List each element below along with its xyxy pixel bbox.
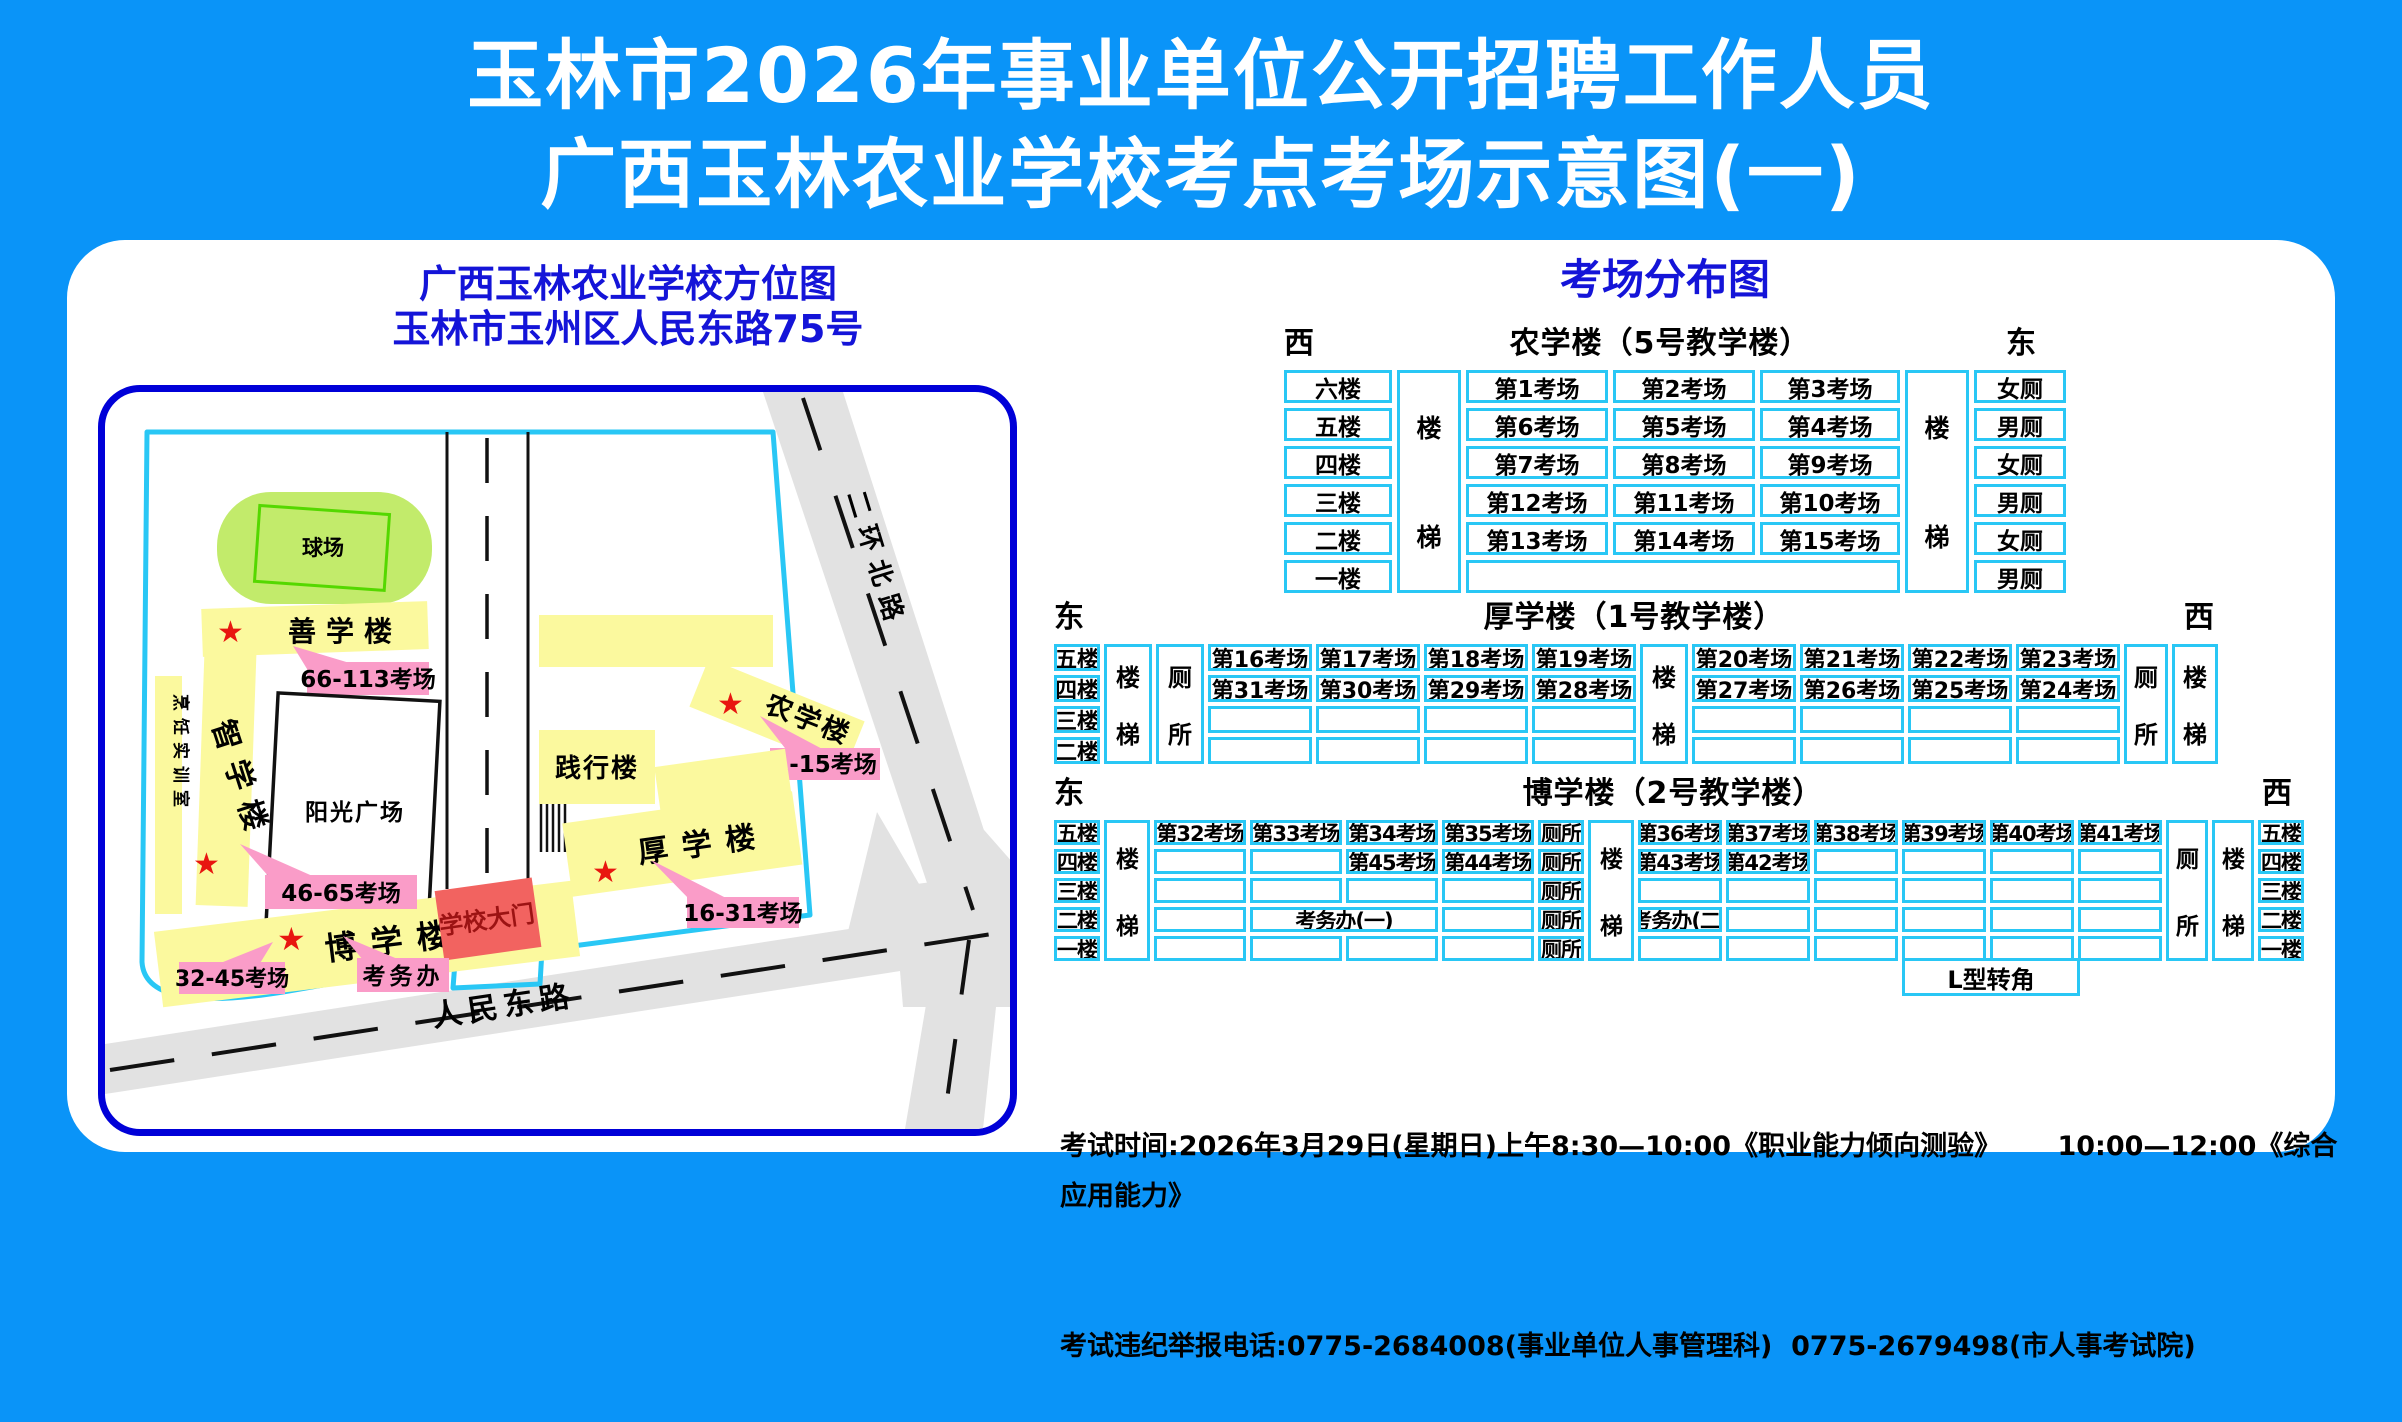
exam-room-cell: 第8考场 <box>1613 446 1755 479</box>
exam-room-cell: 第3考场 <box>1760 370 1900 403</box>
campus-map: 球场 践行楼 ★ 农学楼 1-15考场 ★ 善学楼 66-113考场 烹饪实训室… <box>98 385 1017 1136</box>
stair-char: 梯 <box>1116 907 1138 941</box>
toilet-char: 厕 <box>1168 658 1192 693</box>
table-nongxue-title: 农学楼（5号教学楼） <box>1510 318 1811 362</box>
empty-cell <box>1908 737 2012 764</box>
direction-label-east: 东 <box>1054 768 1084 812</box>
floor-label: 二楼 <box>1054 737 1100 764</box>
empty-cell <box>2016 706 2120 733</box>
empty-cell <box>1990 849 2074 874</box>
exam-room-cell: 第13考场 <box>1466 522 1608 555</box>
toilet-cell: 男厕 <box>1974 560 2066 593</box>
gate-railing <box>541 804 565 852</box>
stair-char: 楼 <box>1600 840 1622 874</box>
floor-label: 五楼 <box>2258 820 2304 845</box>
table-nongxue-header: 西 农学楼（5号教学楼） 东 <box>1284 318 2036 362</box>
exam-room-cell: 第11考场 <box>1613 484 1755 517</box>
empty-cell <box>1692 706 1796 733</box>
stair-cell: 楼 梯 <box>2172 644 2218 764</box>
toilet-cell: 厕所 <box>1538 878 1584 903</box>
stair-char: 楼 <box>1416 409 1441 445</box>
empty-cell <box>1532 706 1636 733</box>
stair-char: 梯 <box>1600 907 1622 941</box>
toilet-cell: 厕所 <box>1538 907 1584 932</box>
stair-cell: 楼 梯 <box>1104 820 1150 961</box>
toilet-char: 所 <box>2176 907 2198 941</box>
exam-room-cell: 第1考场 <box>1466 370 1608 403</box>
exam-room-cell: 第35考场 <box>1442 820 1534 845</box>
star-icon: ★ <box>592 855 619 890</box>
stair-char: 楼 <box>1116 840 1138 874</box>
exam-room-cell: 第6考场 <box>1466 408 1608 441</box>
exam-room-cell: 第14考场 <box>1613 522 1755 555</box>
exam-room-cell: 第10考场 <box>1760 484 1900 517</box>
empty-cell <box>1814 936 1898 961</box>
empty-cell <box>1800 737 1904 764</box>
poster-title: 玉林市2026年事业单位公开招聘工作人员 广西玉林农业学校考点考场示意图(一) <box>0 26 2402 224</box>
playground-label: 球场 <box>302 536 344 560</box>
empty-cell <box>1208 706 1312 733</box>
empty-cell <box>1814 907 1898 932</box>
direction-label-east: 东 <box>2006 318 2036 362</box>
star-icon: ★ <box>717 687 744 722</box>
toilet-cell: 女厕 <box>1974 370 2066 403</box>
toilet-char: 所 <box>2134 715 2158 750</box>
direction-label-west: 西 <box>2184 592 2214 636</box>
empty-cell <box>1442 878 1534 903</box>
stair-char: 梯 <box>1652 715 1676 750</box>
toilet-cell: 女厕 <box>1974 522 2066 555</box>
exam-room-cell: 第30考场 <box>1316 675 1420 702</box>
stair-cell: 楼 梯 <box>1905 370 1969 593</box>
stair-cell: 楼 梯 <box>1104 644 1152 764</box>
empty-cell <box>1346 936 1438 961</box>
floor-label: 四楼 <box>2258 849 2304 874</box>
sunshine-plaza-label: 阳光广场 <box>305 799 405 826</box>
floor-label: 二楼 <box>1284 522 1392 555</box>
exam-room-cell: 第27考场 <box>1692 675 1796 702</box>
table-nongxue: 西 农学楼（5号教学楼） 东 六楼 楼 梯 第1考场 第2考场 第3考场 楼 梯… <box>1284 318 2036 593</box>
exam-room-cell: 第12考场 <box>1466 484 1608 517</box>
exam-room-cell: 第32考场 <box>1154 820 1246 845</box>
stair-char: 楼 <box>2183 658 2207 693</box>
star-icon: ★ <box>217 615 244 650</box>
empty-cell <box>1814 878 1898 903</box>
empty-cell <box>1316 706 1420 733</box>
building-cooking-label: 烹饪实训室 <box>170 694 191 814</box>
exam-room-cell: 第9考场 <box>1760 446 1900 479</box>
empty-cell <box>1250 936 1342 961</box>
distribution-heading: 考场分布图 <box>1390 246 1940 307</box>
empty-cell <box>1990 907 2074 932</box>
direction-label-west: 西 <box>2262 768 2292 812</box>
exam-room-cell: 第34考场 <box>1346 820 1438 845</box>
stair-cell: 楼 梯 <box>1640 644 1688 764</box>
empty-cell <box>1154 849 1246 874</box>
empty-cell <box>2078 878 2162 903</box>
exam-room-cell: 第25考场 <box>1908 675 2012 702</box>
exam-office-cell: 考务办(二) <box>1638 907 1722 932</box>
toilet-char: 所 <box>1168 715 1192 750</box>
stair-char: 梯 <box>2222 907 2244 941</box>
floor-label: 二楼 <box>1054 907 1100 932</box>
toilet-cell: 女厕 <box>1974 446 2066 479</box>
exam-office-cell: 考务办(一) <box>1250 907 1438 932</box>
toilet-cell: 厕 所 <box>2124 644 2168 764</box>
table-houxue: 东 厚学楼（1号教学楼） 西 五楼 楼 梯 厕 所 第16考场 第17考场 第1… <box>1054 592 2214 764</box>
exam-room-cell: 第43考场 <box>1638 849 1722 874</box>
empty-cell <box>1346 878 1438 903</box>
toilet-char: 厕 <box>2134 658 2158 693</box>
star-icon: ★ <box>277 920 306 958</box>
empty-cell <box>2016 737 2120 764</box>
empty-cell <box>1154 878 1246 903</box>
floor-label: 三楼 <box>2258 878 2304 903</box>
poster-title-line2: 广西玉林农业学校考点考场示意图(一) <box>0 125 2402 224</box>
empty-cell <box>1638 936 1722 961</box>
exam-room-cell: 第31考场 <box>1208 675 1312 702</box>
map-title: 广西玉林农业学校方位图 玉林市玉州区人民东路75号 <box>323 262 933 352</box>
stair-char: 楼 <box>2222 840 2244 874</box>
map-title-line1: 广西玉林农业学校方位图 <box>323 262 933 307</box>
table-boxue: 东 博学楼（2号教学楼） 西 五楼 楼 梯 第32考场 第33考场 第34考场 … <box>1054 768 2292 961</box>
stair-cell: 楼 梯 <box>1397 370 1461 593</box>
empty-cell <box>1424 706 1528 733</box>
stair-char: 梯 <box>1416 518 1441 554</box>
empty-cell <box>1532 737 1636 764</box>
table-houxue-title: 厚学楼（1号教学楼） <box>1484 592 1785 636</box>
floor-label: 一楼 <box>1054 936 1100 961</box>
empty-cell <box>1250 878 1342 903</box>
exam-room-cell: 第18考场 <box>1424 644 1528 671</box>
stair-char: 楼 <box>1924 409 1949 445</box>
floor-label: 一楼 <box>2258 936 2304 961</box>
exam-room-cell: 第44考场 <box>1442 849 1534 874</box>
toilet-cell: 厕所 <box>1538 849 1584 874</box>
empty-cell <box>1726 878 1810 903</box>
exam-room-cell: 第42考场 <box>1726 849 1810 874</box>
exam-room-cell: 第2考场 <box>1613 370 1755 403</box>
table-boxue-header: 东 博学楼（2号教学楼） 西 <box>1054 768 2292 812</box>
exam-time-line: 考试时间:2026年3月29日(星期日)上午8:30—10:00《职业能力倾向测… <box>1060 1122 2340 1222</box>
tag-32-45-label: 32-45考场 <box>175 967 289 992</box>
toilet-cell: 厕所 <box>1538 936 1584 961</box>
exam-room-cell: 第26考场 <box>1800 675 1904 702</box>
floor-label: 二楼 <box>2258 907 2304 932</box>
exam-room-cell: 第22考场 <box>1908 644 2012 671</box>
exam-room-cell: 第29考场 <box>1424 675 1528 702</box>
campus-road <box>447 432 528 889</box>
tag-1-15-label: 1-15考场 <box>773 752 877 778</box>
building-jianxing-label: 践行楼 <box>555 753 639 784</box>
stair-char: 楼 <box>1116 658 1140 693</box>
empty-cell <box>1814 849 1898 874</box>
building-shanxue-label: 善学楼 <box>288 615 402 648</box>
stair-cell: 楼 梯 <box>2212 820 2254 961</box>
toilet-cell: 厕 所 <box>2166 820 2208 961</box>
poster-title-line1: 玉林市2026年事业单位公开招聘工作人员 <box>0 26 2402 125</box>
table-houxue-grid: 五楼 楼 梯 厕 所 第16考场 第17考场 第18考场 第19考场 楼 梯 第… <box>1054 644 2214 764</box>
stair-cell: 楼 梯 <box>1588 820 1634 961</box>
exam-room-cell: 第4考场 <box>1760 408 1900 441</box>
empty-cell <box>1902 849 1986 874</box>
exam-room-cell: 第45考场 <box>1346 849 1438 874</box>
star-icon: ★ <box>193 847 220 882</box>
empty-cell <box>1442 936 1534 961</box>
exam-room-cell: 第5考场 <box>1613 408 1755 441</box>
tag-16-31-label: 16-31考场 <box>683 901 803 927</box>
exam-room-cell: 第36考场 <box>1638 820 1722 845</box>
floor-label: 四楼 <box>1054 675 1100 702</box>
empty-cell <box>1316 737 1420 764</box>
empty-cell <box>1154 936 1246 961</box>
empty-cell <box>1726 936 1810 961</box>
direction-label-east: 东 <box>1054 592 1084 636</box>
floor-label: 三楼 <box>1054 878 1100 903</box>
empty-cell <box>1902 878 1986 903</box>
empty-cell <box>2078 849 2162 874</box>
exam-room-cell: 第15考场 <box>1760 522 1900 555</box>
exam-room-cell: 第17考场 <box>1316 644 1420 671</box>
empty-cell <box>1466 560 1900 593</box>
toilet-cell: 厕 所 <box>1156 644 1204 764</box>
exam-room-cell: 第28考场 <box>1532 675 1636 702</box>
toilet-char: 厕 <box>2176 840 2198 874</box>
exam-room-cell: 第38考场 <box>1814 820 1898 845</box>
empty-cell <box>1424 737 1528 764</box>
empty-cell <box>1990 878 2074 903</box>
floor-label: 三楼 <box>1054 706 1100 733</box>
exam-room-cell: 第41考场 <box>2078 820 2162 845</box>
empty-cell <box>1726 907 1810 932</box>
empty-cell <box>1692 737 1796 764</box>
report-phone-line: 考试违纪举报电话:0775-2684008(事业单位人事管理科) 0775-26… <box>1060 1322 2340 1372</box>
empty-cell <box>2078 936 2162 961</box>
floor-label: 五楼 <box>1054 820 1100 845</box>
empty-cell <box>1442 907 1534 932</box>
stair-char: 梯 <box>1116 715 1140 750</box>
exam-info: 考试时间:2026年3月29日(星期日)上午8:30—10:00《职业能力倾向测… <box>1060 1022 2340 1422</box>
exam-room-cell: 第37考场 <box>1726 820 1810 845</box>
toilet-cell: 男厕 <box>1974 484 2066 517</box>
table-boxue-grid: 五楼 楼 梯 第32考场 第33考场 第34考场 第35考场 厕所 楼 梯 第3… <box>1054 820 2292 961</box>
exam-room-cell: 第40考场 <box>1990 820 2074 845</box>
empty-cell <box>2078 907 2162 932</box>
tag-46-65-label: 46-65考场 <box>281 881 401 907</box>
exam-room-cell: 第16考场 <box>1208 644 1312 671</box>
table-nongxue-grid: 六楼 楼 梯 第1考场 第2考场 第3考场 楼 梯 女厕 五楼 第6考场 第5考… <box>1284 370 2036 593</box>
floor-label: 五楼 <box>1284 408 1392 441</box>
stair-char: 梯 <box>2183 715 2207 750</box>
empty-cell <box>1908 706 2012 733</box>
exam-room-cell: 第39考场 <box>1902 820 1986 845</box>
direction-label-west: 西 <box>1284 318 1314 362</box>
exam-room-cell: 第33考场 <box>1250 820 1342 845</box>
floor-label: 四楼 <box>1284 446 1392 479</box>
empty-cell <box>1154 907 1246 932</box>
map-title-line2: 玉林市玉州区人民东路75号 <box>323 307 933 352</box>
empty-cell <box>1902 907 1986 932</box>
empty-cell <box>1250 849 1342 874</box>
table-houxue-header: 东 厚学楼（1号教学楼） 西 <box>1054 592 2214 636</box>
empty-cell <box>1800 706 1904 733</box>
stair-char: 楼 <box>1652 658 1676 693</box>
exam-room-cell: 第21考场 <box>1800 644 1904 671</box>
table-boxue-title: 博学楼（2号教学楼） <box>1523 768 1824 812</box>
toilet-cell: 厕所 <box>1538 820 1584 845</box>
floor-label: 六楼 <box>1284 370 1392 403</box>
exam-room-cell: 第7考场 <box>1466 446 1608 479</box>
empty-cell <box>1208 737 1312 764</box>
empty-cell <box>1638 878 1722 903</box>
stair-char: 梯 <box>1924 518 1949 554</box>
building-bar-north <box>539 615 773 667</box>
exam-room-cell: 第24考场 <box>2016 675 2120 702</box>
exam-room-cell: 第23考场 <box>2016 644 2120 671</box>
exam-room-cell: 第19考场 <box>1532 644 1636 671</box>
floor-label: 五楼 <box>1054 644 1100 671</box>
l-corner-box: L型转角 <box>1902 958 2080 996</box>
tag-66-113-label: 66-113考场 <box>300 667 436 693</box>
floor-label: 三楼 <box>1284 484 1392 517</box>
floor-label: 四楼 <box>1054 849 1100 874</box>
exam-room-cell: 第20考场 <box>1692 644 1796 671</box>
tag-kaowuban-label: 考务办 <box>363 964 444 990</box>
floor-label: 一楼 <box>1284 560 1392 593</box>
toilet-cell: 男厕 <box>1974 408 2066 441</box>
